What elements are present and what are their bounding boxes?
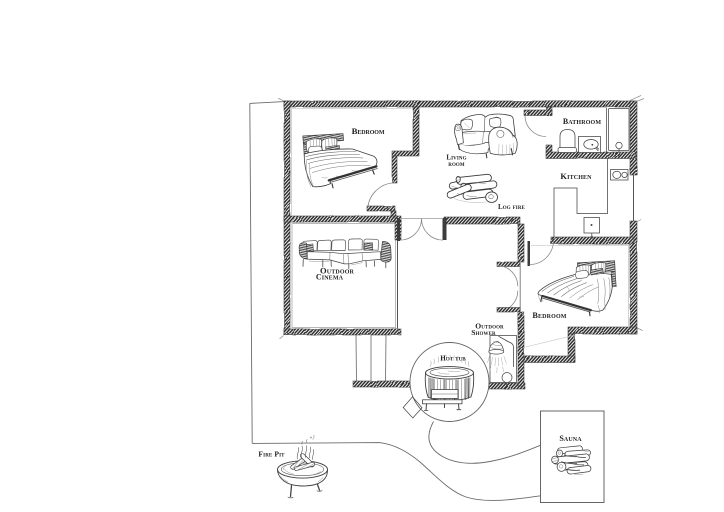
svg-text:room: room	[448, 161, 465, 168]
svg-text:Log fire: Log fire	[498, 203, 526, 211]
svg-text:Sauna: Sauna	[559, 434, 582, 443]
svg-text:Bedroom: Bedroom	[352, 126, 385, 136]
svg-text:Bathroom: Bathroom	[563, 117, 602, 126]
svg-text:Kitchen: Kitchen	[560, 171, 592, 181]
svg-text:Fire Pit: Fire Pit	[258, 449, 285, 458]
svg-text:Hot tub: Hot tub	[440, 355, 466, 363]
svg-text:Cinema: Cinema	[316, 273, 344, 282]
svg-text:Bedroom: Bedroom	[532, 311, 566, 320]
